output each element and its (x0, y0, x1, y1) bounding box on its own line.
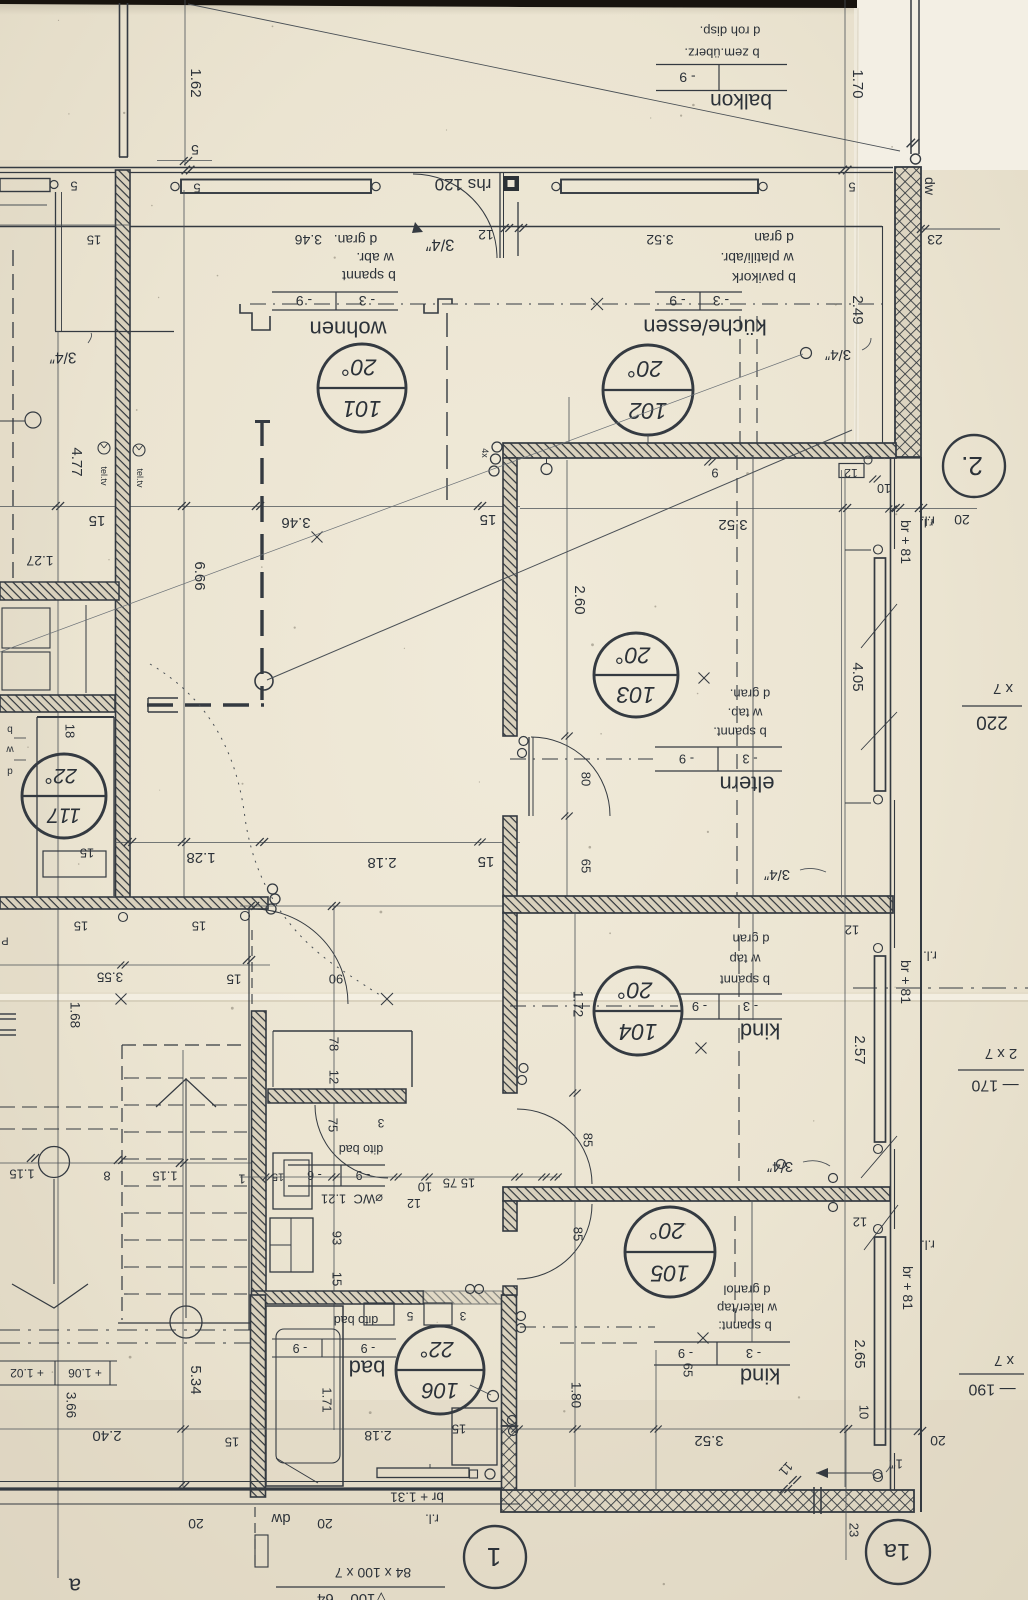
svg-text:1a: 1a (883, 1538, 910, 1565)
svg-text:d granol: d granol (723, 1283, 770, 1298)
svg-text:dw: dw (922, 177, 938, 196)
svg-text:3.52: 3.52 (694, 1432, 723, 1449)
svg-text:65: 65 (579, 859, 594, 873)
svg-text:93: 93 (330, 1231, 345, 1245)
svg-text:20°: 20° (628, 356, 664, 382)
svg-text:- 9: - 9 (356, 1168, 371, 1182)
svg-text:103: 103 (617, 682, 656, 708)
svg-text:br + 1.31: br + 1.31 (390, 1489, 444, 1504)
svg-text:dw: dw (271, 1510, 290, 1527)
svg-text:3.52: 3.52 (646, 232, 673, 248)
svg-text:d roh disp.: d roh disp. (700, 24, 761, 39)
svg-text:r.l.: r.l. (923, 949, 937, 964)
svg-text:d gran. 3.46: d gran. 3.46 (295, 232, 378, 248)
svg-text:1: 1 (238, 1172, 245, 1187)
svg-text:12: 12 (853, 1215, 867, 1230)
svg-text:105: 105 (651, 1260, 690, 1286)
svg-text:- 3: - 3 (742, 752, 757, 767)
svg-text:2 x 7: 2 x 7 (985, 1045, 1018, 1062)
svg-text:15: 15 (452, 1422, 466, 1437)
svg-text:b spannt: b spannt (342, 268, 396, 284)
svg-text:1.28: 1.28 (186, 849, 215, 866)
svg-text:- 9: - 9 (361, 1341, 376, 1355)
svg-text:bad: bad (349, 1356, 386, 1381)
svg-text:10: 10 (877, 481, 891, 495)
svg-text:1.27: 1.27 (26, 553, 53, 569)
svg-text:75: 75 (326, 1118, 341, 1132)
svg-text:15: 15 (74, 919, 88, 934)
svg-text:3.66: 3.66 (63, 1392, 78, 1418)
svg-text:10: 10 (857, 1405, 872, 1419)
svg-text:15: 15 (192, 919, 206, 934)
svg-text:15: 15 (478, 853, 495, 870)
svg-text:x 7: x 7 (993, 680, 1013, 697)
svg-text:84 x 100 x 7: 84 x 100 x 7 (335, 1565, 411, 1581)
svg-text:117: 117 (46, 804, 81, 827)
svg-text:12: 12 (844, 466, 858, 480)
svg-text:10: 10 (418, 1180, 432, 1195)
svg-text:15 75: 15 75 (443, 1176, 476, 1191)
svg-text:3.46: 3.46 (281, 514, 310, 531)
svg-text:3: 3 (377, 1116, 384, 1130)
svg-text:w tap.: w tap. (728, 706, 764, 721)
svg-text:tel.tv: tel.tv (135, 468, 145, 488)
svg-text:5: 5 (848, 180, 855, 195)
svg-text:kind: kind (740, 1364, 780, 1389)
svg-text:2.40: 2.40 (92, 1427, 121, 1444)
svg-text:1.80: 1.80 (568, 1382, 583, 1408)
svg-text:- 9: - 9 (293, 1341, 308, 1355)
svg-text:85: 85 (581, 1133, 596, 1147)
svg-text:dito bad: dito bad (339, 1142, 384, 1156)
svg-text:4.05: 4.05 (849, 662, 866, 691)
svg-text:b zem.überz.: b zem.überz. (684, 46, 759, 61)
svg-text:220: 220 (976, 712, 1008, 733)
svg-text:78: 78 (327, 1037, 342, 1051)
svg-text:- 3: - 3 (743, 999, 758, 1014)
svg-text:b spannt.: b spannt. (713, 725, 767, 740)
svg-text:- 3: - 3 (359, 293, 376, 309)
svg-text:5: 5 (191, 142, 199, 158)
svg-text:22°: 22° (45, 764, 78, 787)
svg-text:1.71: 1.71 (320, 1387, 335, 1412)
svg-text:104: 104 (619, 1019, 657, 1045)
svg-text:b pavikork: b pavikork (731, 270, 796, 286)
svg-text:5.34: 5.34 (187, 1365, 204, 1394)
svg-text:3.55: 3.55 (97, 969, 123, 984)
svg-text:x 7: x 7 (994, 1352, 1014, 1369)
svg-text:- 9: - 9 (669, 293, 686, 309)
svg-text:w later/tap: w later/tap (717, 1301, 778, 1316)
svg-text:w tap: w tap (729, 952, 761, 967)
svg-text:w platili/abr.: w platili/abr. (720, 250, 794, 266)
svg-text:⌀WC 1.21: ⌀WC 1.21 (321, 1192, 383, 1207)
svg-text:23: 23 (847, 1523, 862, 1537)
svg-text:5: 5 (406, 1309, 413, 1323)
svg-text:d gran: d gran (733, 932, 770, 947)
svg-text:1.68: 1.68 (67, 1002, 82, 1028)
svg-text:15: 15 (330, 1272, 345, 1286)
svg-text:20°: 20° (650, 1218, 686, 1244)
svg-text:balkon: balkon (710, 89, 772, 112)
svg-text:d gran.: d gran. (730, 687, 770, 702)
svg-text:wohnen: wohnen (309, 317, 387, 342)
svg-text:tel.tv: tel.tv (99, 466, 109, 486)
svg-text:3/4″: 3/4″ (824, 346, 851, 363)
svg-text:20°: 20° (616, 643, 652, 669)
svg-text:101: 101 (343, 396, 381, 422)
svg-text:3/4″: 3/4″ (425, 235, 454, 253)
svg-text:15: 15 (89, 512, 106, 529)
svg-text:15: 15 (272, 1170, 284, 1182)
svg-text:w: w (6, 744, 15, 755)
svg-text:106: 106 (421, 1378, 458, 1403)
svg-text:12: 12 (845, 923, 859, 938)
svg-text:20: 20 (188, 1516, 204, 1532)
svg-text:3: 3 (459, 1309, 466, 1323)
svg-text:1.72: 1.72 (570, 991, 585, 1017)
svg-text:küche/essen: küche/essen (643, 315, 767, 340)
svg-text:2.60: 2.60 (571, 585, 588, 614)
svg-text:20: 20 (317, 1516, 333, 1532)
svg-text:65: 65 (681, 1363, 696, 1377)
svg-text:r.l.: r.l. (921, 1238, 935, 1253)
svg-text:2.65: 2.65 (851, 1339, 868, 1368)
svg-text:- 9: - 9 (296, 293, 313, 309)
svg-text:12: 12 (327, 1070, 342, 1084)
svg-text:20°: 20° (342, 354, 378, 380)
svg-text:— 170: — 170 (971, 1077, 1018, 1094)
svg-text:d: d (7, 766, 13, 777)
svg-text:b spannt:: b spannt: (718, 1319, 772, 1334)
svg-text:br + 81: br + 81 (898, 960, 914, 1004)
svg-text:1.15: 1.15 (152, 1169, 177, 1184)
svg-text:- 3: - 3 (713, 293, 730, 309)
svg-text:5: 5 (193, 181, 200, 196)
svg-text:4x: 4x (480, 448, 490, 458)
svg-text:15: 15 (480, 511, 497, 528)
svg-text:w abr.: w abr. (356, 250, 394, 266)
svg-text:kind: kind (740, 1019, 780, 1044)
svg-text:5: 5 (70, 179, 77, 194)
svg-text:1.15: 1.15 (9, 1167, 34, 1182)
svg-text:br + 81: br + 81 (900, 1266, 916, 1310)
svg-text:▽100 64: ▽100 64 (317, 1590, 387, 1600)
svg-text:80: 80 (579, 772, 594, 786)
svg-text:1.70: 1.70 (849, 69, 866, 98)
svg-text:1: 1 (487, 1542, 501, 1572)
svg-text:4.77: 4.77 (68, 447, 85, 476)
svg-text:— 190: — 190 (968, 1381, 1015, 1398)
svg-text:a: a (68, 1574, 81, 1599)
svg-text:90: 90 (329, 972, 343, 987)
svg-text:2.18: 2.18 (364, 1428, 391, 1444)
svg-text:1.62: 1.62 (187, 68, 204, 97)
svg-text:15: 15 (225, 1435, 239, 1450)
svg-text:22°: 22° (420, 1337, 454, 1362)
svg-text:rhs 120: rhs 120 (435, 175, 492, 194)
svg-text:eltern: eltern (719, 772, 774, 797)
svg-text:P: P (1, 934, 8, 946)
svg-text:d gran: d gran (754, 230, 794, 246)
svg-text:- 9: - 9 (692, 999, 707, 1014)
svg-text:12: 12 (478, 227, 494, 243)
svg-text:- 9: - 9 (678, 1346, 693, 1361)
svg-text:2.: 2. (961, 451, 983, 481)
svg-text:9: 9 (711, 466, 718, 481)
svg-text:20: 20 (930, 1433, 946, 1449)
svg-text:8: 8 (103, 1169, 110, 1184)
svg-text:br + 81: br + 81 (898, 520, 914, 564)
svg-text:15: 15 (80, 846, 94, 861)
svg-text:3/4″: 3/4″ (49, 349, 77, 366)
svg-text:2.49: 2.49 (849, 295, 866, 324)
svg-text:- 9: - 9 (679, 70, 696, 86)
svg-text:85: 85 (571, 1227, 586, 1241)
svg-text:15: 15 (87, 233, 101, 248)
svg-text:18: 18 (63, 724, 78, 738)
svg-text:+ 1.06: + 1.06 (68, 1366, 102, 1380)
svg-text:12: 12 (407, 1196, 421, 1210)
svg-text:3.52: 3.52 (718, 516, 747, 533)
svg-text:20: 20 (954, 512, 970, 528)
svg-text:23: 23 (927, 232, 943, 248)
svg-text:20°: 20° (618, 978, 654, 1004)
svg-text:+ 1.02: + 1.02 (10, 1366, 44, 1380)
svg-text:r.l.: r.l. (425, 1512, 439, 1527)
svg-text:15: 15 (226, 971, 241, 986)
svg-text:3/4″: 3/4″ (766, 1158, 793, 1175)
svg-text:2.57: 2.57 (851, 1035, 868, 1064)
svg-text:b: b (7, 724, 13, 735)
svg-text:2.18: 2.18 (367, 854, 396, 871)
svg-text:- 3: - 3 (746, 1346, 761, 1361)
svg-text:b spannt: b spannt (720, 973, 770, 988)
svg-text:3/4″: 3/4″ (763, 866, 790, 883)
svg-text:- 9: - 9 (679, 752, 694, 767)
svg-text:1″: 1″ (891, 1457, 903, 1472)
svg-text:r.l.: r.l. (921, 514, 935, 529)
